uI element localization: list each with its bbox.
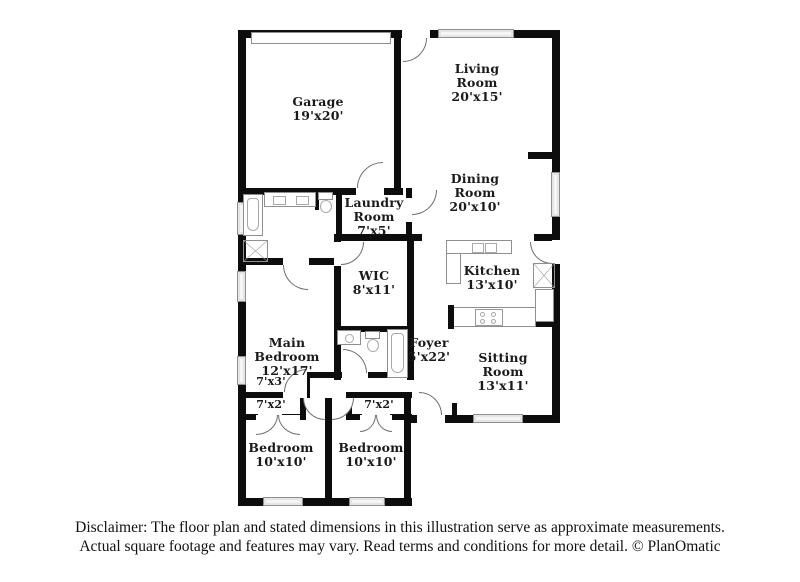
closet-label-2: 7'x2' xyxy=(357,399,401,411)
bathtub-basin xyxy=(247,198,259,231)
door-living-entry xyxy=(403,38,427,62)
closet-dims: 7'x3' xyxy=(251,376,291,388)
burner xyxy=(491,319,496,324)
window-bedroom-1 xyxy=(263,497,303,506)
wall-stub-living-dining xyxy=(528,152,554,159)
window-main-bedroom-lower xyxy=(237,356,246,385)
shower-icon xyxy=(243,240,268,262)
room-label-sitting-room: Sitting Room 13'x11' xyxy=(471,351,535,392)
door-bath2 xyxy=(343,349,367,373)
room-dims: 7'x5' xyxy=(343,224,405,238)
opening-garage-laundry xyxy=(356,188,384,195)
sink-basin xyxy=(345,334,354,343)
window-living-room xyxy=(438,29,514,38)
sink-basin xyxy=(273,196,286,205)
opening-living-entry xyxy=(402,30,430,38)
room-dims: 5'x22' xyxy=(407,350,451,364)
wall-right-exterior xyxy=(552,30,560,423)
disclaimer-line-1: Disclaimer: The floor plan and stated di… xyxy=(0,519,800,538)
closet-dims: 7'x2' xyxy=(357,399,401,411)
door-laundry-hall xyxy=(412,190,437,215)
bathtub-icon-main xyxy=(243,194,263,236)
wall-bedroom-divider xyxy=(325,398,332,506)
wall-counter-end xyxy=(448,305,454,329)
opening-wic xyxy=(334,242,341,266)
double-vanity-icon xyxy=(264,192,316,207)
window-bedroom-2 xyxy=(349,497,385,506)
room-label-laundry-room: Laundry Room 7'x5' xyxy=(343,196,405,237)
room-label-kitchen: Kitchen 13'x10' xyxy=(453,264,531,292)
toilet-tank-main xyxy=(318,192,333,200)
kitchen-counter-island xyxy=(446,240,512,254)
room-dims: 10'x10' xyxy=(333,455,409,469)
wall-tick-sitting xyxy=(452,403,457,415)
room-name: Laundry Room xyxy=(343,196,405,224)
room-dims: 19'x20' xyxy=(278,109,358,123)
room-label-bedroom-1: Bedroom 10'x10' xyxy=(243,441,319,469)
burner xyxy=(480,312,485,317)
room-dims: 13'x11' xyxy=(471,379,535,393)
room-label-garage: Garage 19'x20' xyxy=(278,95,358,123)
door-kitchen-side xyxy=(530,242,552,264)
door-garage-laundry xyxy=(357,162,383,188)
toilet-tank-bath2 xyxy=(365,331,380,339)
door-bath1-bedroom xyxy=(283,265,308,290)
burner xyxy=(491,312,496,317)
burner xyxy=(480,319,485,324)
room-dims: 10'x10' xyxy=(243,455,319,469)
wall-garage-living-divider xyxy=(394,30,401,195)
room-dims: 20'x10' xyxy=(440,200,510,214)
room-label-bedroom-2: Bedroom 10'x10' xyxy=(333,441,409,469)
room-name: Sitting Room xyxy=(471,351,535,379)
closet-label-1: 7'x2' xyxy=(249,399,293,411)
vanity-icon-bath2 xyxy=(337,330,361,345)
bathtub-basin xyxy=(391,333,404,373)
bifold-closet2-left xyxy=(360,415,376,432)
kitchen-sink-basin xyxy=(472,243,484,253)
door-front-entry xyxy=(419,392,442,415)
window-sitting-room xyxy=(473,414,523,423)
closet-dims: 7'x2' xyxy=(249,399,293,411)
room-dims: 8'x11' xyxy=(345,283,403,297)
door-wic xyxy=(341,242,364,265)
room-name: WIC xyxy=(345,269,403,283)
kitchen-counter-lower xyxy=(451,307,536,327)
fridge-icon xyxy=(535,289,554,322)
room-label-wic: WIC 8'x11' xyxy=(345,269,403,297)
kitchen-sink-basin xyxy=(485,243,497,253)
garage-door-icon xyxy=(251,32,391,44)
room-name: Dining Room xyxy=(440,172,510,200)
opening-bath1-bedroom xyxy=(283,258,309,265)
bifold-closet1-right xyxy=(278,415,300,435)
room-name: Garage xyxy=(278,95,358,109)
toilet-bowl-main xyxy=(320,200,332,213)
room-name: Bedroom xyxy=(243,441,319,455)
wall-stub-kitchen-door xyxy=(534,234,553,241)
disclaimer: Disclaimer: The floor plan and stated di… xyxy=(0,519,800,557)
room-name: Main Bedroom xyxy=(249,336,325,364)
bifold-closet2-right xyxy=(376,415,392,432)
wall-closet1-bottom-left xyxy=(238,414,258,420)
room-label-foyer: Foyer 5'x22' xyxy=(407,336,451,364)
room-name: Bedroom xyxy=(333,441,409,455)
window-dining-room xyxy=(551,172,560,217)
window-main-bedroom-upper xyxy=(237,271,246,302)
room-dims: 20'x15' xyxy=(444,90,510,104)
stove-icon xyxy=(475,309,503,326)
wall-closet2-bottom-right xyxy=(390,414,412,420)
room-label-dining-room: Dining Room 20'x10' xyxy=(440,172,510,213)
wall-left-exterior xyxy=(238,30,246,506)
pantry-icon xyxy=(533,263,555,288)
closet-label-hall: 7'x3' xyxy=(251,376,291,388)
room-name: Foyer xyxy=(407,336,451,350)
sink-basin xyxy=(296,196,309,205)
opening-kitchen-side xyxy=(552,240,560,264)
room-name: Living Room xyxy=(444,62,510,90)
toilet-bowl-bath2 xyxy=(367,339,379,352)
door-bedroom-1 xyxy=(303,398,325,420)
room-dims: 13'x10' xyxy=(453,278,531,292)
room-label-living-room: Living Room 20'x15' xyxy=(444,62,510,103)
floor-plan-page: Garage 19'x20' Living Room 20'x15' Dinin… xyxy=(0,0,800,582)
room-name: Kitchen xyxy=(453,264,531,278)
room-label-main-bedroom: Main Bedroom 12'x17' xyxy=(249,336,325,377)
disclaimer-line-2: Actual square footage and features may v… xyxy=(0,538,800,557)
opening-front-entry xyxy=(417,415,445,423)
bifold-closet1-left xyxy=(256,415,278,435)
floor-plan: Garage 19'x20' Living Room 20'x15' Dinin… xyxy=(0,0,800,582)
bathtub-icon-bath2 xyxy=(387,329,408,378)
